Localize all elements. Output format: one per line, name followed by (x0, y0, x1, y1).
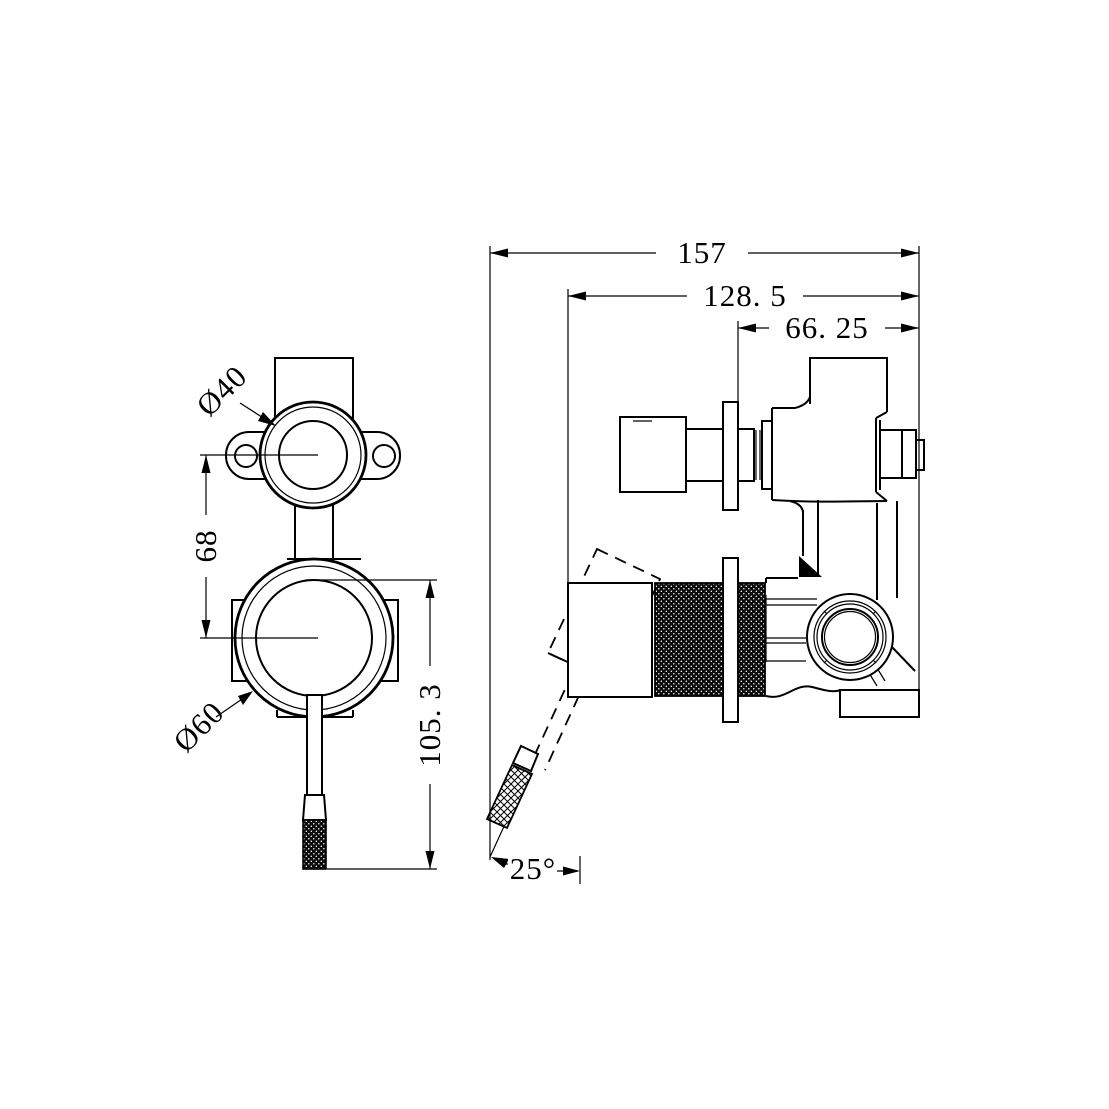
knurled-grip-front (303, 820, 326, 869)
drawing-page: 68 105. 3 Ø40 Ø60 (0, 0, 1109, 1109)
dim-lever-angle: 25° (491, 851, 580, 886)
dim-port-centres: 68 (188, 455, 223, 638)
dim-overall-depth-label: 157 (677, 235, 727, 270)
label-upper-trim-dia: Ø40 (189, 358, 276, 426)
outlet-port (807, 594, 893, 680)
diverter-stem (686, 429, 723, 481)
valve-body-upper (772, 358, 924, 502)
lower-trim-dia-text: Ø60 (166, 694, 231, 759)
wall-plate-lower (723, 558, 738, 722)
technical-drawing-svg: 68 105. 3 Ø40 Ø60 (0, 0, 1109, 1109)
label-lower-trim-dia: Ø60 (166, 691, 253, 759)
inlet-pipe (810, 358, 887, 412)
dim-lever-angle-label: 25° (510, 851, 556, 886)
diverter-knob (620, 417, 686, 492)
side-view: 25° (487, 358, 924, 886)
diverter-assembly (620, 402, 772, 510)
dim-wall-offset-label: 66. 25 (785, 310, 869, 345)
wall-plate-upper (723, 402, 738, 510)
trim-neck (295, 503, 333, 565)
dim-recess-depth-label: 128. 5 (703, 278, 787, 313)
knurled-sleeve (655, 583, 765, 696)
front-view: 68 105. 3 Ø40 Ø60 (166, 358, 447, 869)
lever-base-box (568, 583, 652, 697)
upper-trim-dia-text: Ø40 (189, 358, 254, 423)
dim-wall-offset: 66. 25 (738, 310, 919, 402)
body-foot (840, 690, 919, 717)
dim-port-centres-label: 68 (188, 530, 223, 563)
lever-handle-front (303, 695, 326, 869)
body-neck (766, 500, 822, 583)
dim-trim-height-label: 105. 3 (412, 683, 447, 767)
knurled-grip-rotated (487, 765, 532, 828)
